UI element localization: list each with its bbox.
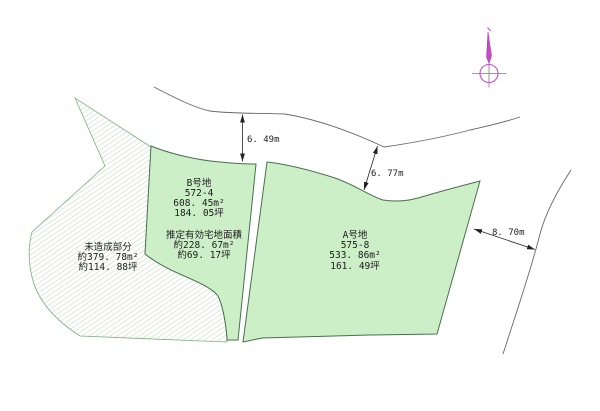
north-compass-icon bbox=[472, 28, 507, 88]
parcel-a-area-tsubo: 161. 49坪 bbox=[330, 260, 380, 272]
road-right-line bbox=[503, 170, 571, 354]
compass-needle bbox=[487, 32, 492, 64]
land-plot-drawing: 6. 49m 6. 77m 8. 70m B号地 572-4 608. 45m²… bbox=[0, 0, 600, 411]
dimension-top-label: 6. 49m bbox=[247, 135, 280, 145]
dimension-right-label: 8. 70m bbox=[492, 228, 525, 238]
parcel-b-area-tsubo: 184. 05坪 bbox=[174, 207, 224, 219]
plot-plan-svg: 6. 49m 6. 77m 8. 70m B号地 572-4 608. 45m²… bbox=[0, 0, 600, 411]
undeveloped-area-tsubo: 約114. 88坪 bbox=[78, 261, 138, 273]
effective-area-tsubo: 約69. 17坪 bbox=[177, 249, 231, 261]
dimension-middle: 6. 77m bbox=[364, 146, 404, 190]
dimension-right: 8. 70m bbox=[474, 228, 535, 250]
dimension-middle-label: 6. 77m bbox=[371, 169, 404, 179]
undeveloped-labels: 未造成部分 約379. 78m² 約114. 88坪 bbox=[78, 241, 139, 273]
compass-top-tick bbox=[488, 28, 491, 32]
parcel-a-area-m2: 533. 86m² bbox=[329, 250, 380, 261]
dimension-top: 6. 49m bbox=[243, 115, 280, 162]
road-top-line bbox=[154, 87, 520, 147]
